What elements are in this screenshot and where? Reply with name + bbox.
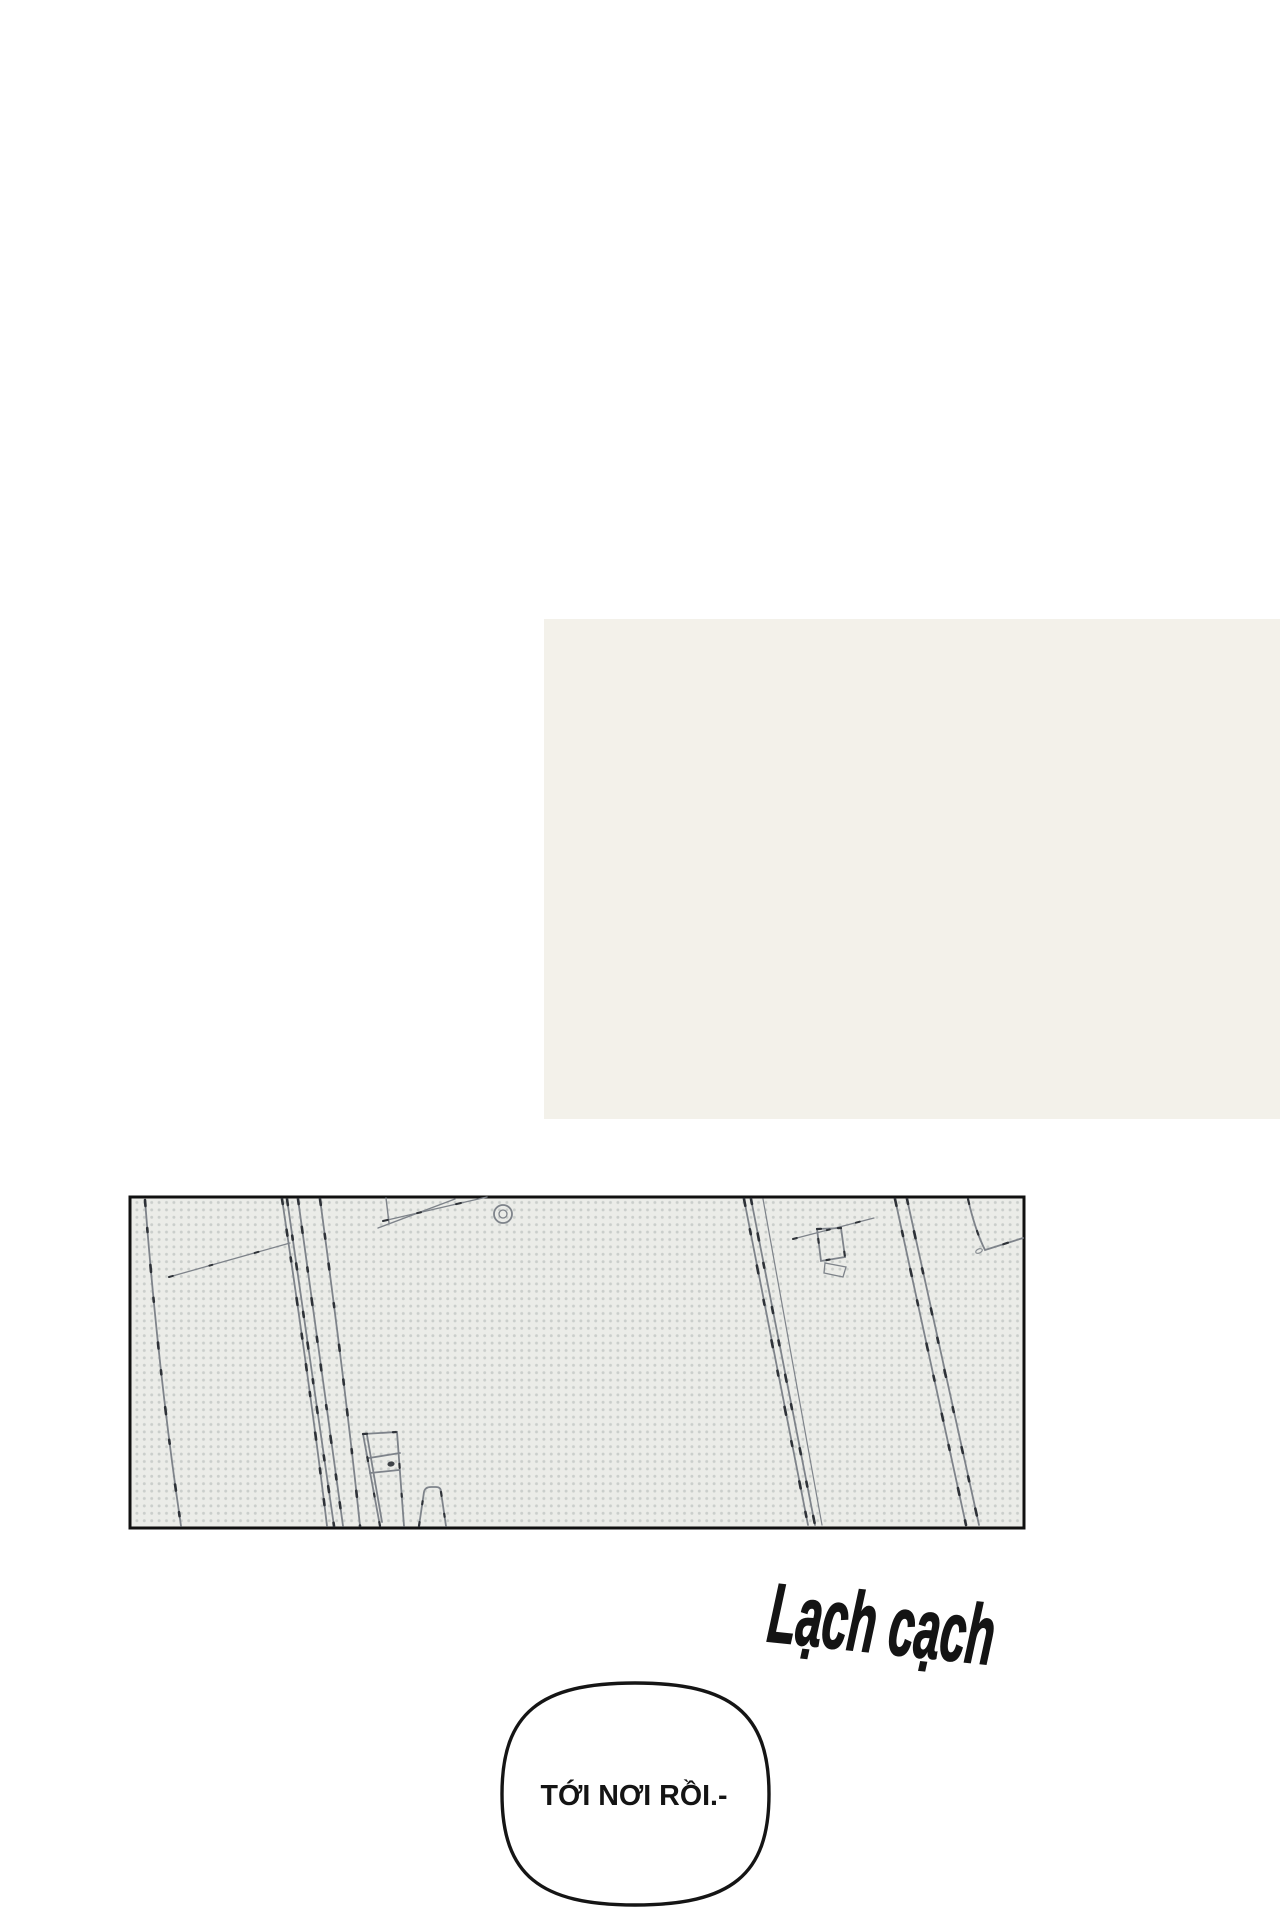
svg-text:TỚI NƠI RỒI.-: TỚI NƠI RỒI.-: [541, 1778, 728, 1812]
svg-text:Lạch cạch: Lạch cạch: [764, 1567, 999, 1683]
